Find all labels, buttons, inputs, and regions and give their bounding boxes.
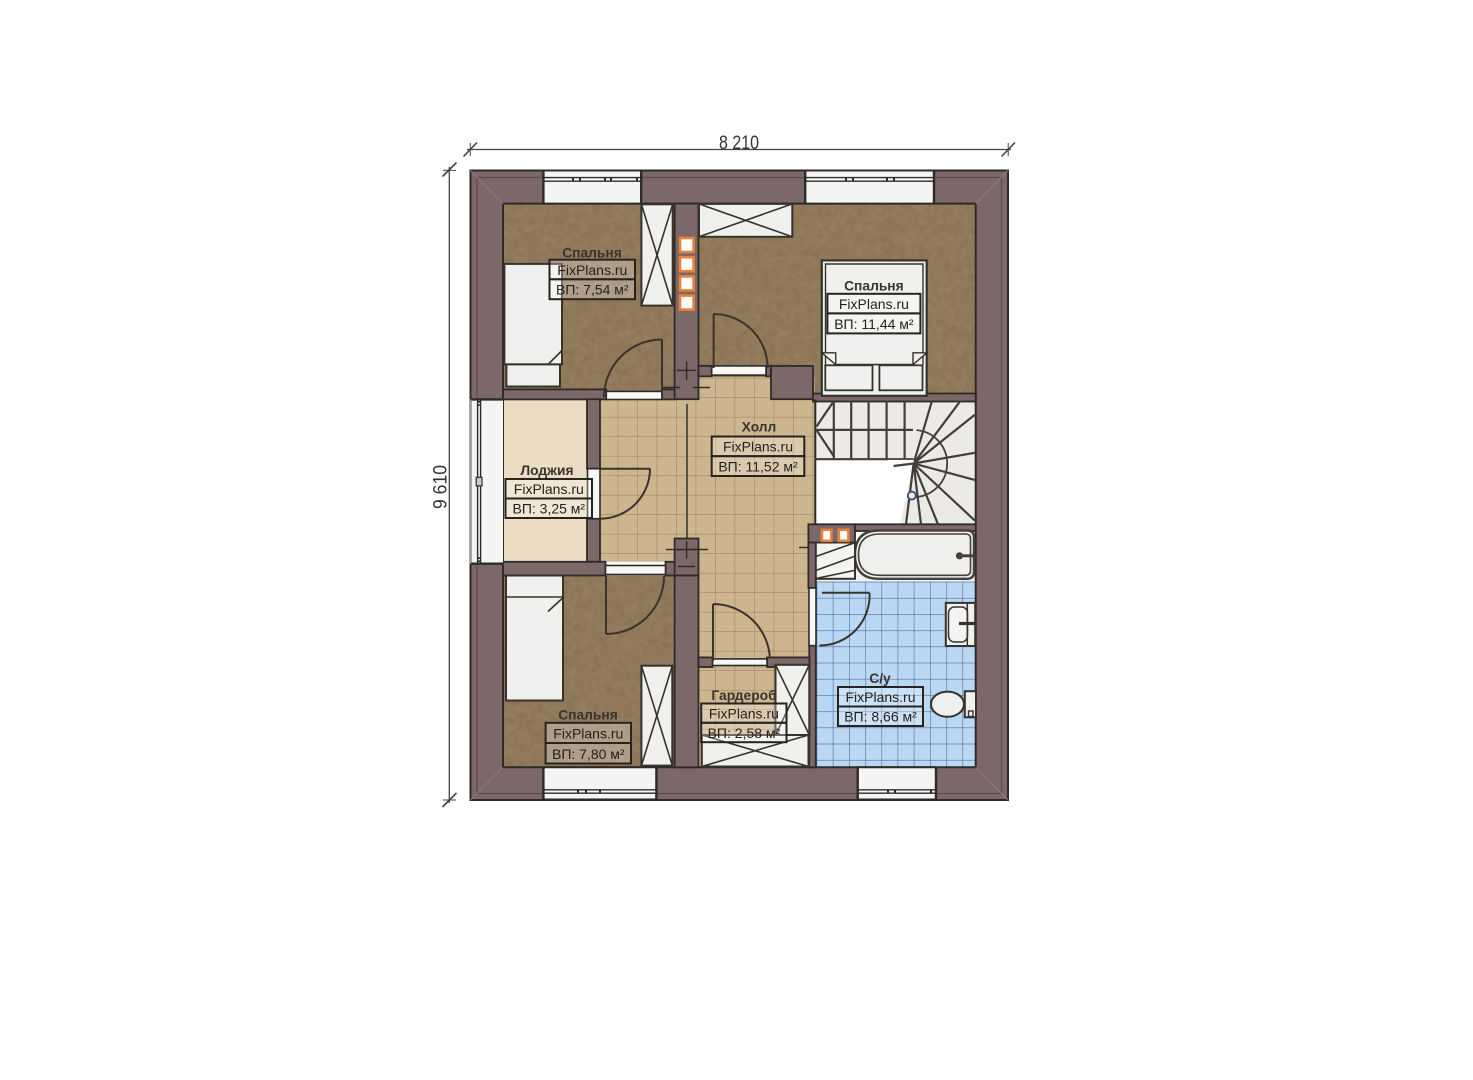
svg-text:ВП: 3,25 м²: ВП: 3,25 м² xyxy=(512,501,585,517)
svg-text:ВП: 8,66 м²: ВП: 8,66 м² xyxy=(844,709,917,725)
svg-text:Гардероб: Гардероб xyxy=(711,688,776,703)
svg-text:FixPlans.ru: FixPlans.ru xyxy=(723,439,793,455)
svg-text:8 210: 8 210 xyxy=(719,133,759,154)
svg-text:FixPlans.ru: FixPlans.ru xyxy=(553,725,623,741)
svg-text:FixPlans.ru: FixPlans.ru xyxy=(839,296,909,312)
svg-text:Спальня: Спальня xyxy=(558,708,618,723)
svg-text:Лоджия: Лоджия xyxy=(521,463,574,478)
svg-text:9 610: 9 610 xyxy=(431,465,452,509)
svg-text:FixPlans.ru: FixPlans.ru xyxy=(514,481,584,497)
svg-text:ВП: 7,54 м²: ВП: 7,54 м² xyxy=(556,282,629,298)
svg-text:ВП: 11,44 м²: ВП: 11,44 м² xyxy=(834,316,914,332)
svg-text:Спальня: Спальня xyxy=(844,279,904,294)
svg-text:Спальня: Спальня xyxy=(562,246,622,261)
svg-text:Холл: Холл xyxy=(742,420,777,435)
svg-text:ВП: 2,58 м²: ВП: 2,58 м² xyxy=(708,725,781,741)
svg-text:FixPlans.ru: FixPlans.ru xyxy=(709,706,779,722)
svg-text:FixPlans.ru: FixPlans.ru xyxy=(557,262,627,278)
svg-text:ВП: 7,80 м²: ВП: 7,80 м² xyxy=(552,746,625,762)
svg-text:С/у: С/у xyxy=(869,671,891,686)
svg-text:FixPlans.ru: FixPlans.ru xyxy=(845,689,915,705)
svg-text:ВП: 11,52 м²: ВП: 11,52 м² xyxy=(718,459,798,475)
